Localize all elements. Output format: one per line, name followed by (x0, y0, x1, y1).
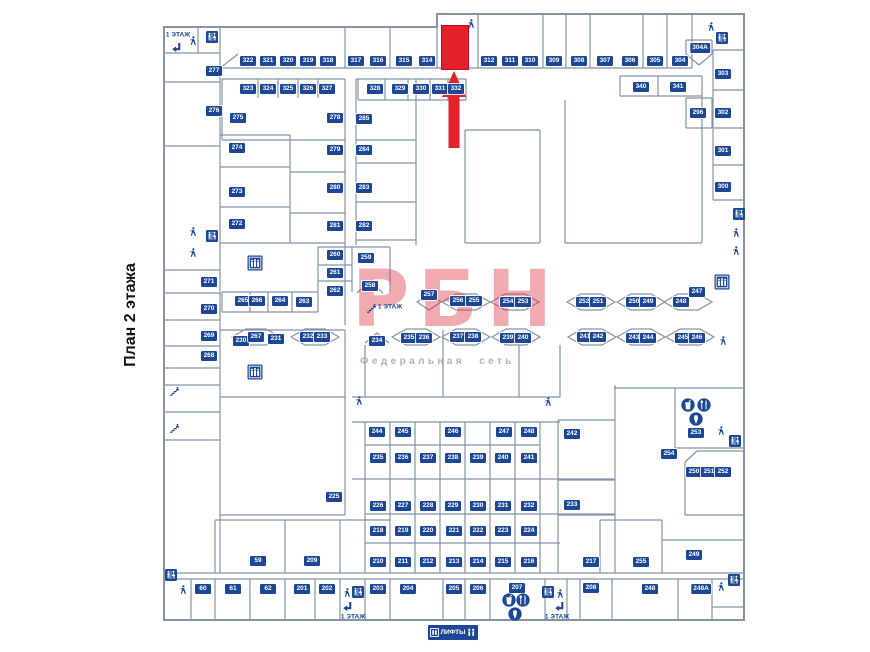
unit-label-259: 259 (358, 253, 374, 263)
unit-label-60: 60 (195, 584, 211, 594)
unit-label-270: 270 (201, 304, 217, 314)
unit-label-240: 240 (515, 333, 531, 343)
unit-label-228: 228 (420, 501, 436, 511)
unit-label-267: 267 (248, 332, 264, 342)
unit-label-250: 250 (686, 467, 702, 477)
unit-label-214: 214 (470, 557, 486, 567)
unit-label-240: 240 (495, 453, 511, 463)
unit-label-233: 233 (564, 500, 580, 510)
unit-label-300: 300 (715, 182, 731, 192)
escsteps-icon (169, 424, 182, 435)
unit-label-325: 325 (280, 84, 296, 94)
wc-icon (206, 230, 218, 242)
unit-label-251: 251 (590, 297, 606, 307)
lifts-sign-label: ЛИФТЫ (441, 629, 466, 636)
wc-icon (729, 435, 741, 447)
wc-icon (352, 586, 364, 598)
unit-label-238: 238 (445, 453, 461, 463)
elev-icon (248, 256, 263, 271)
unit-label-62: 62 (260, 584, 276, 594)
unit-label-247: 247 (496, 427, 512, 437)
unit-label-223: 223 (495, 526, 511, 536)
unit-label-312: 312 (481, 56, 497, 66)
elev-icon (715, 275, 730, 290)
unit-label-253: 253 (515, 297, 531, 307)
unit-label-235: 235 (370, 453, 386, 463)
unit-label-201: 201 (294, 584, 310, 594)
dessert-icon (508, 607, 522, 621)
wc-icon (165, 569, 177, 581)
unit-label-276: 276 (206, 106, 222, 116)
floor-sign: 1 ЭТАЖ (333, 614, 373, 621)
wc-icon (716, 32, 728, 44)
unit-label-254: 254 (661, 449, 677, 459)
unit-label-301: 301 (715, 146, 731, 156)
escsteps-icon (169, 387, 182, 398)
unit-label-258: 258 (362, 281, 378, 291)
floor-sign: 1 ЭТАЖ (377, 304, 403, 311)
drink-icon (502, 593, 516, 607)
people-icon (467, 628, 476, 637)
unit-label-244: 244 (369, 427, 385, 437)
lifts-sign: ЛИФТЫ (427, 624, 479, 641)
unit-label-246: 246 (445, 427, 461, 437)
unit-label-257: 257 (421, 290, 437, 300)
unit-label-227: 227 (395, 501, 411, 511)
unit-label-268: 268 (201, 351, 217, 361)
unit-label-252: 252 (715, 467, 731, 477)
unit-label-279: 279 (327, 145, 343, 155)
unit-label-239: 239 (500, 333, 516, 343)
unit-label-311: 311 (502, 56, 518, 66)
floor-sign: 1 ЭТАЖ (537, 614, 577, 621)
meal-icon (697, 398, 711, 412)
unit-label-212: 212 (420, 557, 436, 567)
unit-label-206: 206 (470, 584, 486, 594)
unit-label-263: 263 (296, 297, 312, 307)
drink-icon (681, 398, 695, 412)
unit-label-264: 264 (272, 296, 288, 306)
unit-label-242: 242 (590, 332, 606, 342)
unit-label-238: 238 (465, 332, 481, 342)
unit-label-327: 327 (319, 84, 335, 94)
unit-label-275: 275 (230, 113, 246, 123)
unit-label-308: 308 (571, 56, 587, 66)
unit-label-324: 324 (260, 84, 276, 94)
unit-label-321: 321 (260, 56, 276, 66)
wc-icon (542, 586, 554, 598)
unit-label-341: 341 (670, 82, 686, 92)
elev-icon (248, 365, 263, 380)
unit-label-221: 221 (446, 526, 462, 536)
unit-label-211: 211 (395, 557, 411, 567)
unit-label-331: 331 (432, 84, 448, 94)
unit-label-322: 322 (240, 56, 256, 66)
unit-label-230: 230 (470, 501, 486, 511)
page-title: План 2 этажа (122, 263, 140, 367)
person-icon (342, 587, 352, 600)
unit-label-245: 245 (395, 427, 411, 437)
unit-label-280: 280 (327, 183, 343, 193)
person-icon (716, 425, 726, 438)
unit-label-255: 255 (633, 557, 649, 567)
person-icon (706, 21, 716, 34)
unit-label-248А: 248А (691, 584, 711, 594)
unit-label-317: 317 (348, 56, 364, 66)
unit-label-303: 303 (715, 69, 731, 79)
unit-label-281: 281 (327, 221, 343, 231)
unit-label-330: 330 (413, 84, 429, 94)
unit-label-272: 272 (229, 219, 245, 229)
unit-label-231: 231 (268, 334, 284, 344)
unit-label-234: 234 (369, 336, 385, 346)
unit-label-253: 253 (688, 428, 704, 438)
unit-label-248: 248 (521, 427, 537, 437)
unit-label-302: 302 (715, 108, 731, 118)
unit-label-306: 306 (622, 56, 638, 66)
person-icon (543, 396, 553, 409)
unit-label-314: 314 (419, 56, 435, 66)
unit-label-269: 269 (201, 331, 217, 341)
floor-plan-page: РБН Федеральная сеть План 2 этажа 322321… (0, 0, 870, 652)
unit-label-225: 225 (326, 492, 342, 502)
unit-label-249: 249 (640, 297, 656, 307)
unit-label-204: 204 (400, 584, 416, 594)
unit-label-241: 241 (521, 453, 537, 463)
unit-label-260: 260 (327, 250, 343, 260)
unit-label-304: 304 (672, 56, 688, 66)
unit-label-213: 213 (446, 557, 462, 567)
unit-label-232: 232 (521, 501, 537, 511)
unit-label-226: 226 (370, 501, 386, 511)
unit-label-255: 255 (466, 296, 482, 306)
unit-label-254: 254 (500, 297, 516, 307)
unit-label-323: 323 (240, 84, 256, 94)
dessert-icon (689, 412, 703, 426)
unit-label-205: 205 (446, 584, 462, 594)
unit-label-224: 224 (521, 526, 537, 536)
unit-label-217: 217 (583, 557, 599, 567)
unit-label-244: 244 (640, 333, 656, 343)
highlighted-unit[interactable] (441, 25, 469, 70)
unit-label-242: 242 (564, 429, 580, 439)
person-icon (555, 588, 565, 601)
unit-label-340: 340 (633, 82, 649, 92)
unit-label-329: 329 (392, 84, 408, 94)
unit-label-332: 332 (448, 84, 464, 94)
unit-label-326: 326 (300, 84, 316, 94)
escarrow-icon (554, 602, 566, 613)
unit-label-218: 218 (370, 526, 386, 536)
unit-label-236: 236 (395, 453, 411, 463)
unit-label-210: 210 (370, 557, 386, 567)
unit-label-248: 248 (642, 584, 658, 594)
unit-label-318: 318 (320, 56, 336, 66)
unit-label-235: 235 (401, 333, 417, 343)
unit-label-220: 220 (420, 526, 436, 536)
unit-label-237: 237 (420, 453, 436, 463)
unit-label-285: 285 (356, 114, 372, 124)
person-icon (188, 226, 198, 239)
person-icon (731, 227, 741, 240)
unit-label-248: 248 (673, 297, 689, 307)
unit-label-315: 315 (396, 56, 412, 66)
unit-label-249: 249 (686, 550, 702, 560)
unit-label-202: 202 (319, 584, 335, 594)
person-icon (178, 584, 188, 597)
person-icon (731, 245, 741, 258)
unit-label-239: 239 (470, 453, 486, 463)
wc-icon (206, 31, 218, 43)
unit-label-273: 273 (229, 187, 245, 197)
unit-label-284: 284 (356, 145, 372, 155)
unit-label-319: 319 (300, 56, 316, 66)
unit-label-229: 229 (445, 501, 461, 511)
unit-label-230: 230 (233, 336, 249, 346)
unit-label-282: 282 (356, 221, 372, 231)
unit-label-222: 222 (470, 526, 486, 536)
unit-label-207: 207 (509, 583, 525, 593)
unit-label-219: 219 (395, 526, 411, 536)
unit-label-274: 274 (229, 143, 245, 153)
unit-label-203: 203 (370, 584, 386, 594)
unit-label-215: 215 (495, 557, 511, 567)
unit-label-231: 231 (495, 501, 511, 511)
person-icon (354, 395, 364, 408)
unit-label-233: 233 (314, 332, 330, 342)
unit-label-307: 307 (597, 56, 613, 66)
unit-label-296: 296 (690, 108, 706, 118)
unit-label-277: 277 (206, 66, 222, 76)
unit-label-305: 305 (647, 56, 663, 66)
unit-label-304А: 304А (690, 43, 710, 53)
wc-icon (733, 208, 745, 220)
unit-label-246: 246 (689, 333, 705, 343)
unit-label-59: 59 (250, 556, 266, 566)
unit-label-310: 310 (522, 56, 538, 66)
unit-label-271: 271 (201, 277, 217, 287)
unit-label-209: 209 (304, 556, 320, 566)
elevator-icon (430, 628, 439, 637)
unit-label-261: 261 (327, 268, 343, 278)
person-icon (188, 247, 198, 260)
person-icon (718, 335, 728, 348)
unit-label-266: 266 (249, 296, 265, 306)
floor-sign: 1 ЭТАЖ (158, 32, 198, 39)
unit-label-262: 262 (327, 286, 343, 296)
unit-label-316: 316 (370, 56, 386, 66)
unit-label-283: 283 (356, 183, 372, 193)
unit-label-208: 208 (583, 583, 599, 593)
unit-label-278: 278 (327, 113, 343, 123)
unit-label-216: 216 (521, 557, 537, 567)
escarrow-icon (171, 43, 183, 54)
unit-label-309: 309 (546, 56, 562, 66)
escarrow-icon (342, 602, 354, 613)
unit-label-320: 320 (280, 56, 296, 66)
unit-label-61: 61 (225, 584, 241, 594)
person-icon (716, 581, 726, 594)
unit-label-237: 237 (450, 332, 466, 342)
wc-icon (728, 574, 740, 586)
unit-label-236: 236 (416, 333, 432, 343)
meal-icon (516, 593, 530, 607)
unit-label-247: 247 (689, 287, 705, 297)
unit-label-256: 256 (450, 296, 466, 306)
unit-label-328: 328 (367, 84, 383, 94)
